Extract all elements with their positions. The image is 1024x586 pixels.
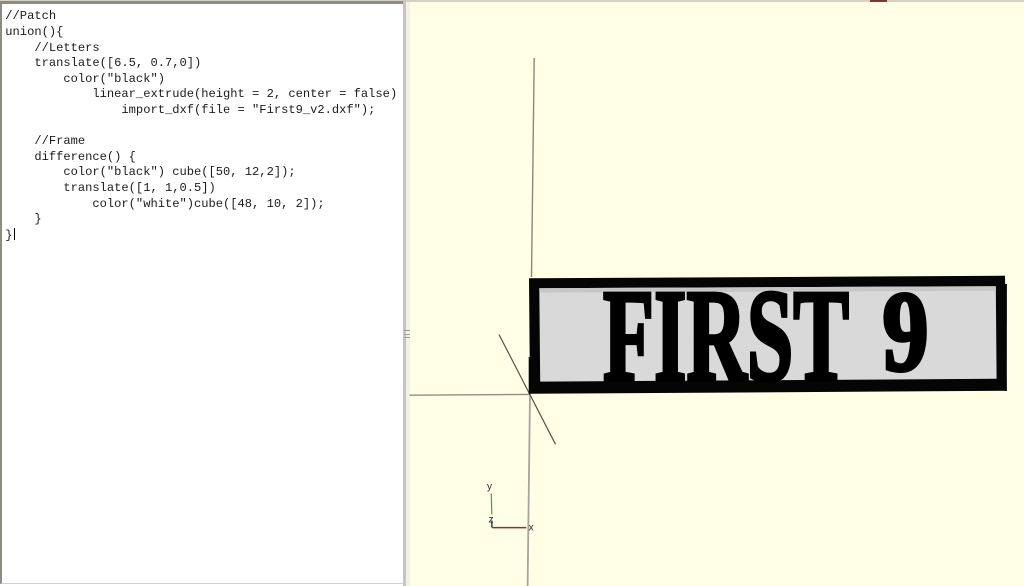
- svg-text:9: 9: [883, 268, 929, 395]
- svg-text:x: x: [529, 523, 534, 534]
- svg-text:y: y: [487, 482, 492, 493]
- svg-text:z: z: [489, 515, 494, 526]
- svg-text:FIRST: FIRST: [603, 262, 849, 409]
